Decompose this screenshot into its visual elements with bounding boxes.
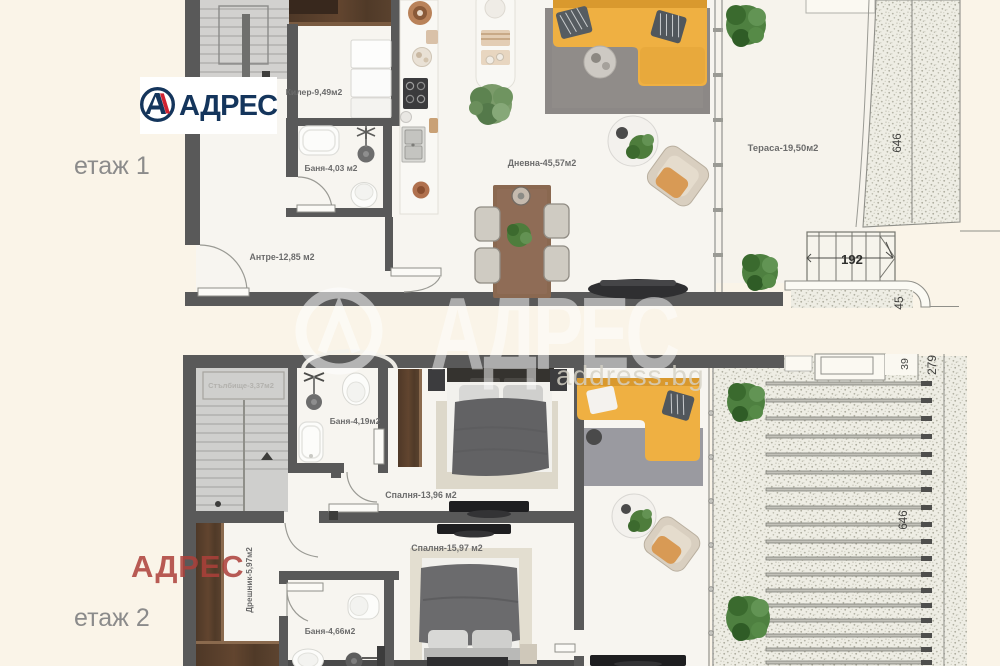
svg-text:Спалня-13,96 м2: Спалня-13,96 м2 bbox=[385, 490, 456, 500]
svg-text:Антре-12,85 м2: Антре-12,85 м2 bbox=[249, 252, 314, 262]
svg-text:Тераса-19,50м2: Тераса-19,50м2 bbox=[748, 142, 819, 153]
svg-text:Стълбище-3,37м2: Стълбище-3,37м2 bbox=[208, 381, 274, 390]
svg-text:646: 646 bbox=[892, 133, 904, 152]
svg-text:646: 646 bbox=[898, 510, 910, 529]
svg-text:279: 279 bbox=[925, 355, 939, 375]
svg-text:Баня-4,19м2: Баня-4,19м2 bbox=[330, 416, 381, 426]
svg-text:45: 45 bbox=[892, 296, 906, 310]
svg-text:Дневна-45,57м2: Дневна-45,57м2 bbox=[508, 158, 577, 168]
svg-text:етаж 1: етаж 1 bbox=[74, 152, 150, 180]
svg-text:Дрешник-5,97м2: Дрешник-5,97м2 bbox=[245, 547, 254, 613]
svg-text:39: 39 bbox=[899, 358, 911, 370]
svg-text:address.bg: address.bg bbox=[556, 360, 705, 391]
svg-text:етаж 2: етаж 2 bbox=[74, 604, 150, 632]
svg-text:АДРЕС: АДРЕС bbox=[131, 549, 244, 584]
svg-text:192: 192 bbox=[841, 252, 863, 267]
svg-text:Килер-9,49м2: Килер-9,49м2 bbox=[286, 87, 343, 97]
svg-text:Спалня-15,97 м2: Спалня-15,97 м2 bbox=[411, 543, 482, 553]
svg-text:Баня-4,03 м2: Баня-4,03 м2 bbox=[305, 163, 358, 173]
svg-text:АДРЕС: АДРЕС bbox=[179, 90, 278, 122]
svg-text:Баня-4,66м2: Баня-4,66м2 bbox=[305, 626, 356, 636]
